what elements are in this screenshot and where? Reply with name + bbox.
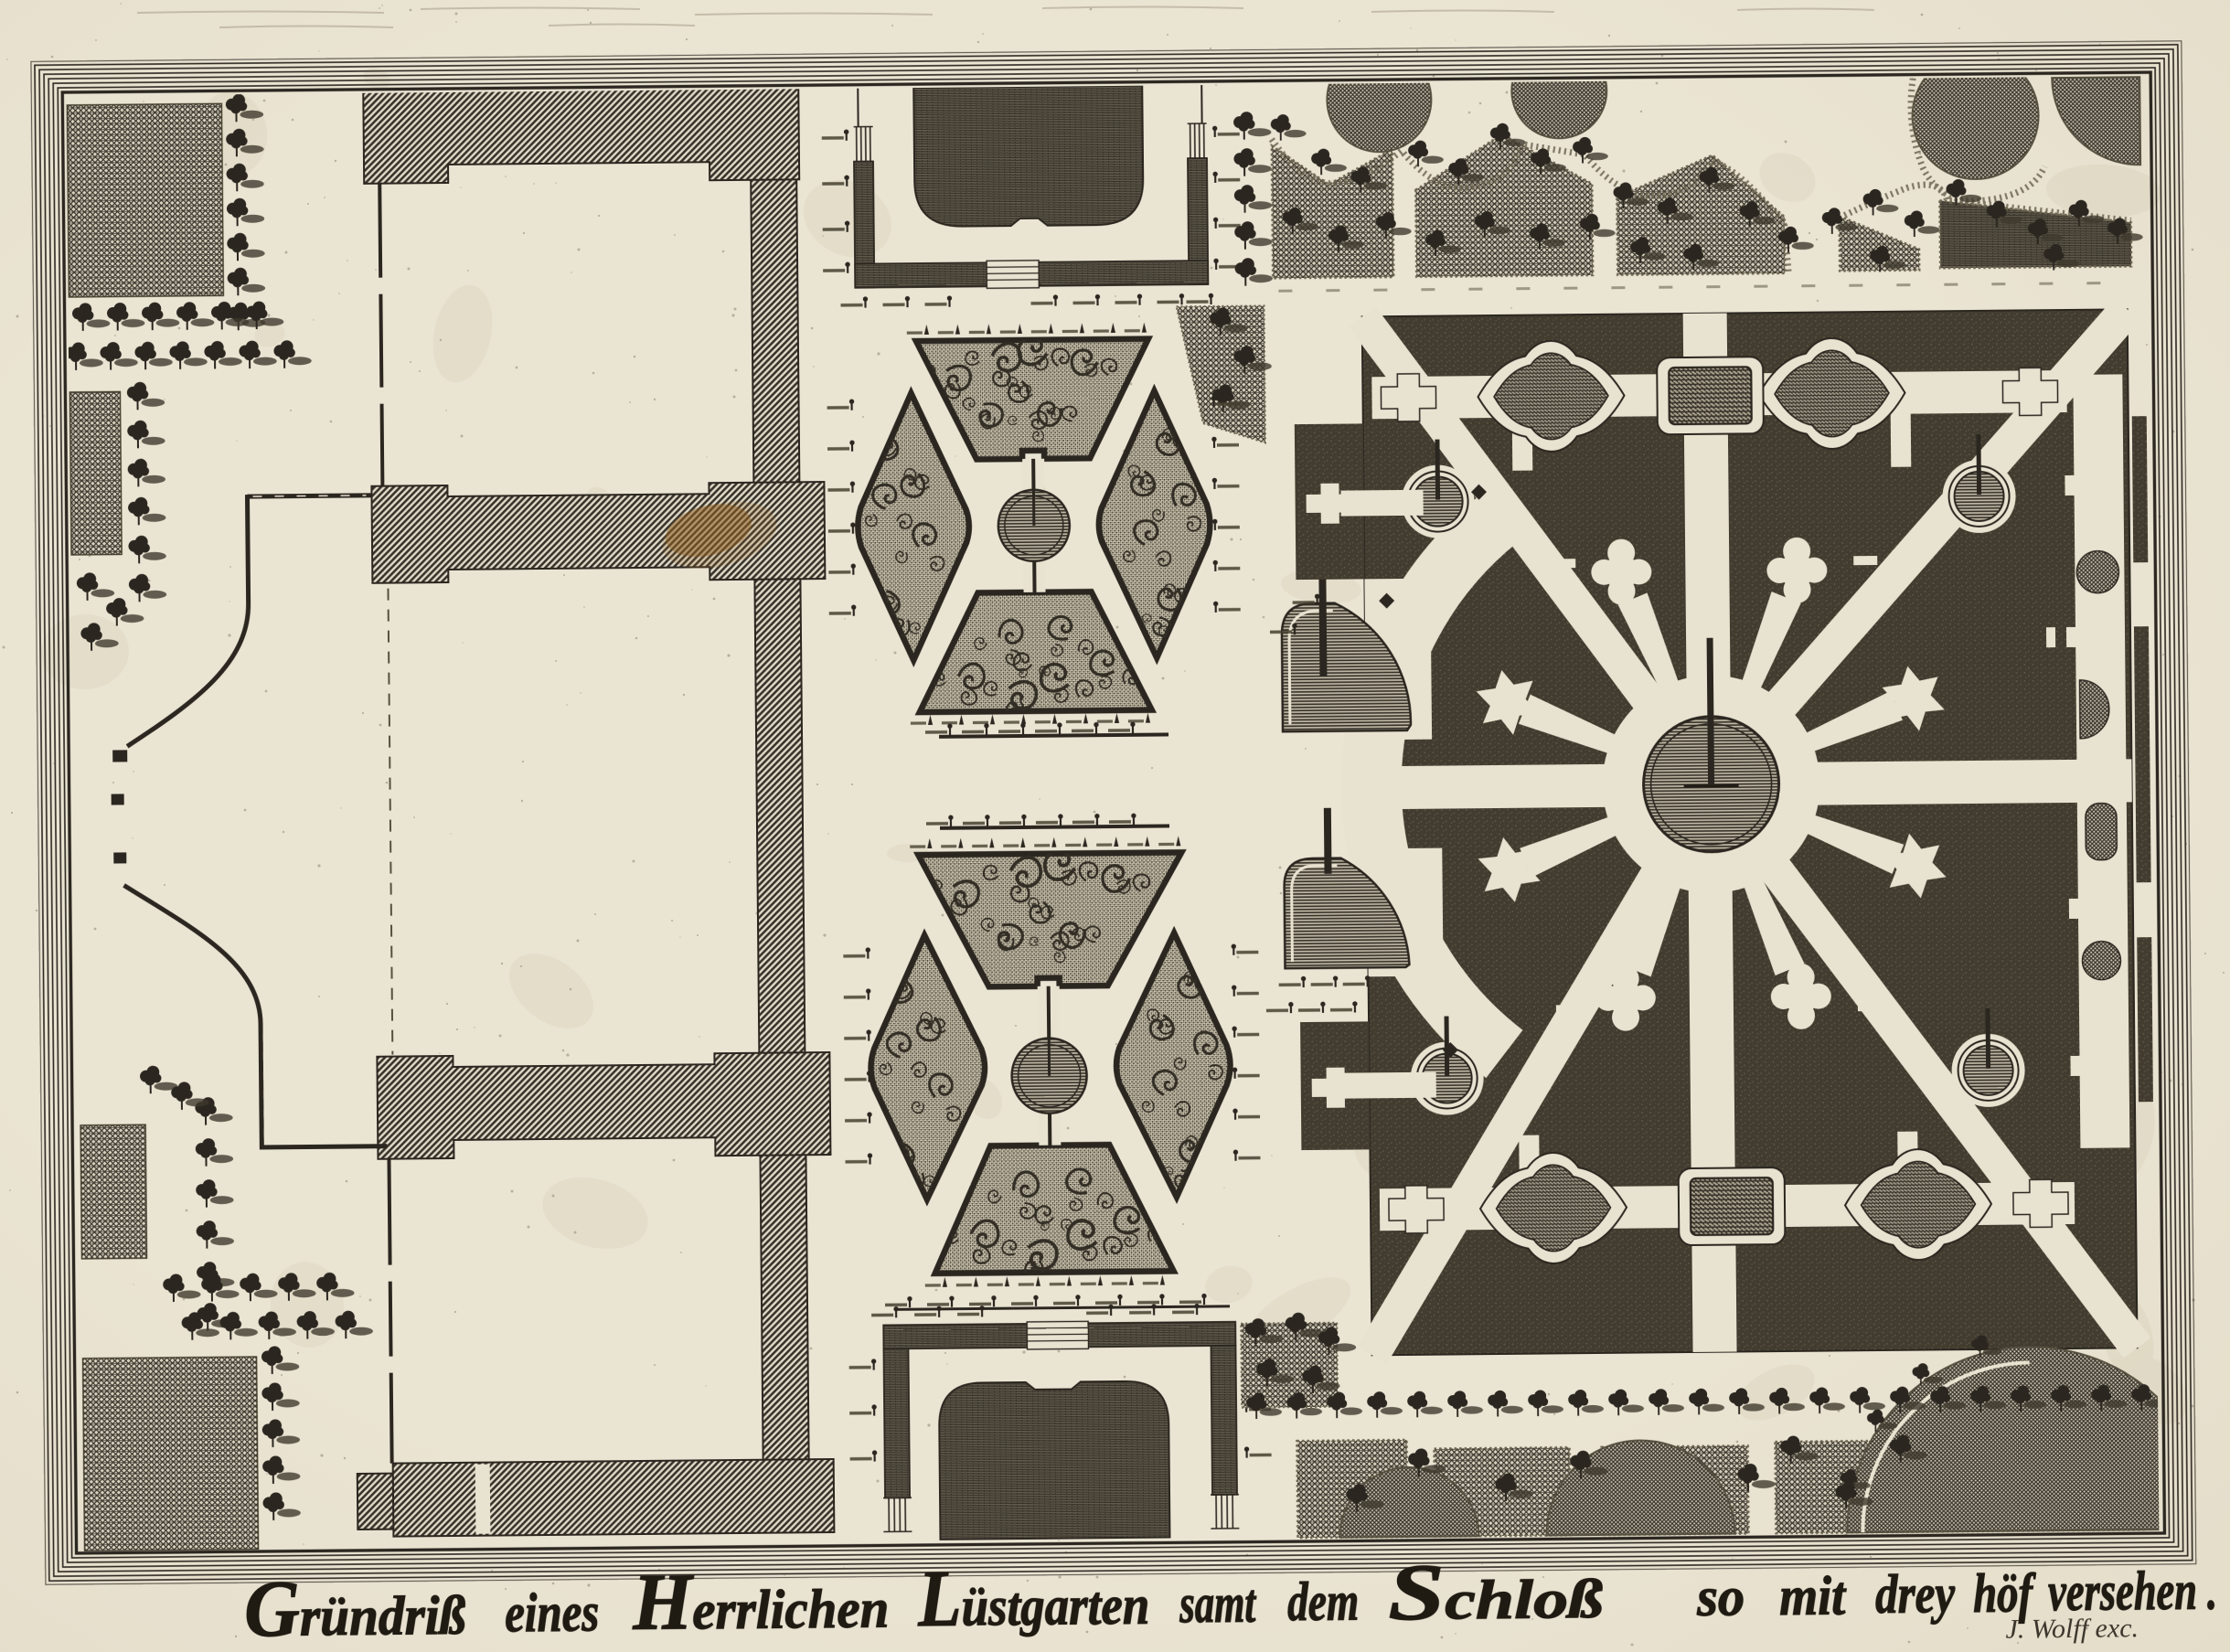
svg-text:J. Wolff exc.: J. Wolff exc.: [2005, 1613, 2139, 1644]
svg-text:so: so: [1696, 1566, 1745, 1627]
svg-text:dem: dem: [1287, 1571, 1360, 1632]
svg-text:eines: eines: [505, 1582, 600, 1643]
svg-text:mit: mit: [1779, 1565, 1848, 1626]
svg-text:samt: samt: [1179, 1573, 1257, 1635]
svg-text:drey: drey: [1875, 1563, 1956, 1625]
